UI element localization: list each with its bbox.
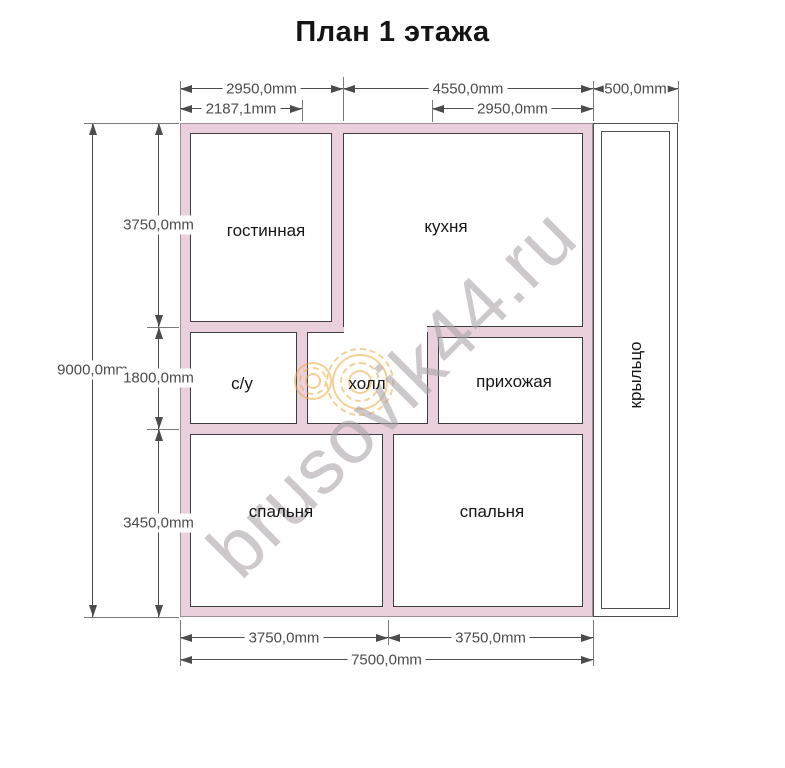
room-label-bath: с/у: [231, 374, 253, 394]
dim-label: 2950,0mm: [473, 100, 552, 117]
dim-label: 2950,0mm: [222, 80, 301, 97]
extension-line: [84, 617, 179, 618]
arrow-down-icon: [89, 605, 97, 617]
arrow-right-icon: [581, 85, 593, 93]
dim-label: 2187,1mm: [202, 100, 281, 117]
dim-label: 7500,0mm: [347, 651, 426, 668]
extension-line: [180, 620, 181, 666]
extension-line: [593, 620, 594, 666]
arrow-down-icon: [155, 605, 163, 617]
arrow-down-icon: [155, 315, 163, 327]
room-label-bedroom-right: спальня: [460, 502, 525, 522]
extension-line: [302, 100, 303, 121]
extension-line: [388, 620, 389, 645]
arrow-right-icon: [331, 85, 343, 93]
arrow-up-icon: [155, 123, 163, 135]
extension-line: [343, 77, 344, 121]
dim-label: 3750,0mm: [245, 629, 324, 646]
arrow-down-icon: [155, 417, 163, 429]
dim-label: 3750,0mm: [451, 629, 530, 646]
arrow-left-icon: [343, 85, 355, 93]
dim-label: 1800,0mm: [120, 369, 197, 388]
arrow-left-icon: [432, 105, 444, 113]
arrow-left-icon: [180, 105, 192, 113]
arrow-left-icon: [180, 634, 192, 642]
dim-label: 3450,0mm: [120, 514, 197, 533]
room-label-bedroom-left: спальня: [249, 502, 314, 522]
room-label-kitchen: кухня: [424, 217, 467, 237]
extension-line: [84, 123, 179, 124]
arrow-up-icon: [89, 123, 97, 135]
dim-label: 500,0mm: [603, 80, 668, 97]
arrow-left-icon: [180, 656, 192, 664]
wall-opening-kitchen-hall: [344, 321, 427, 338]
arrow-right-icon: [581, 634, 593, 642]
arrow-left-icon: [388, 634, 400, 642]
extension-line: [593, 81, 594, 121]
extension-line: [147, 327, 179, 328]
arrow-right-icon: [290, 105, 302, 113]
arrow-up-icon: [155, 327, 163, 339]
arrow-right-icon: [581, 656, 593, 664]
extension-line: [180, 81, 181, 121]
arrow-right-icon: [581, 105, 593, 113]
floor-plan-canvas: План 1 этажа brusovik44.ru гостинная кух…: [0, 0, 785, 768]
dim-label: 3750,0mm: [120, 216, 197, 235]
extension-line: [678, 81, 679, 122]
page-title: План 1 этажа: [0, 16, 785, 49]
room-label-living: гостинная: [227, 221, 306, 241]
room-label-entry: прихожая: [476, 372, 552, 392]
extension-line: [432, 100, 433, 122]
room-label-hall: холл: [348, 374, 385, 394]
arrow-left-icon: [180, 85, 192, 93]
dim-label: 4550,0mm: [429, 80, 508, 97]
arrow-right-icon: [666, 85, 678, 93]
arrow-right-icon: [376, 634, 388, 642]
extension-line: [147, 429, 179, 430]
arrow-up-icon: [155, 429, 163, 441]
room-label-porch: крыльцо: [626, 342, 646, 409]
